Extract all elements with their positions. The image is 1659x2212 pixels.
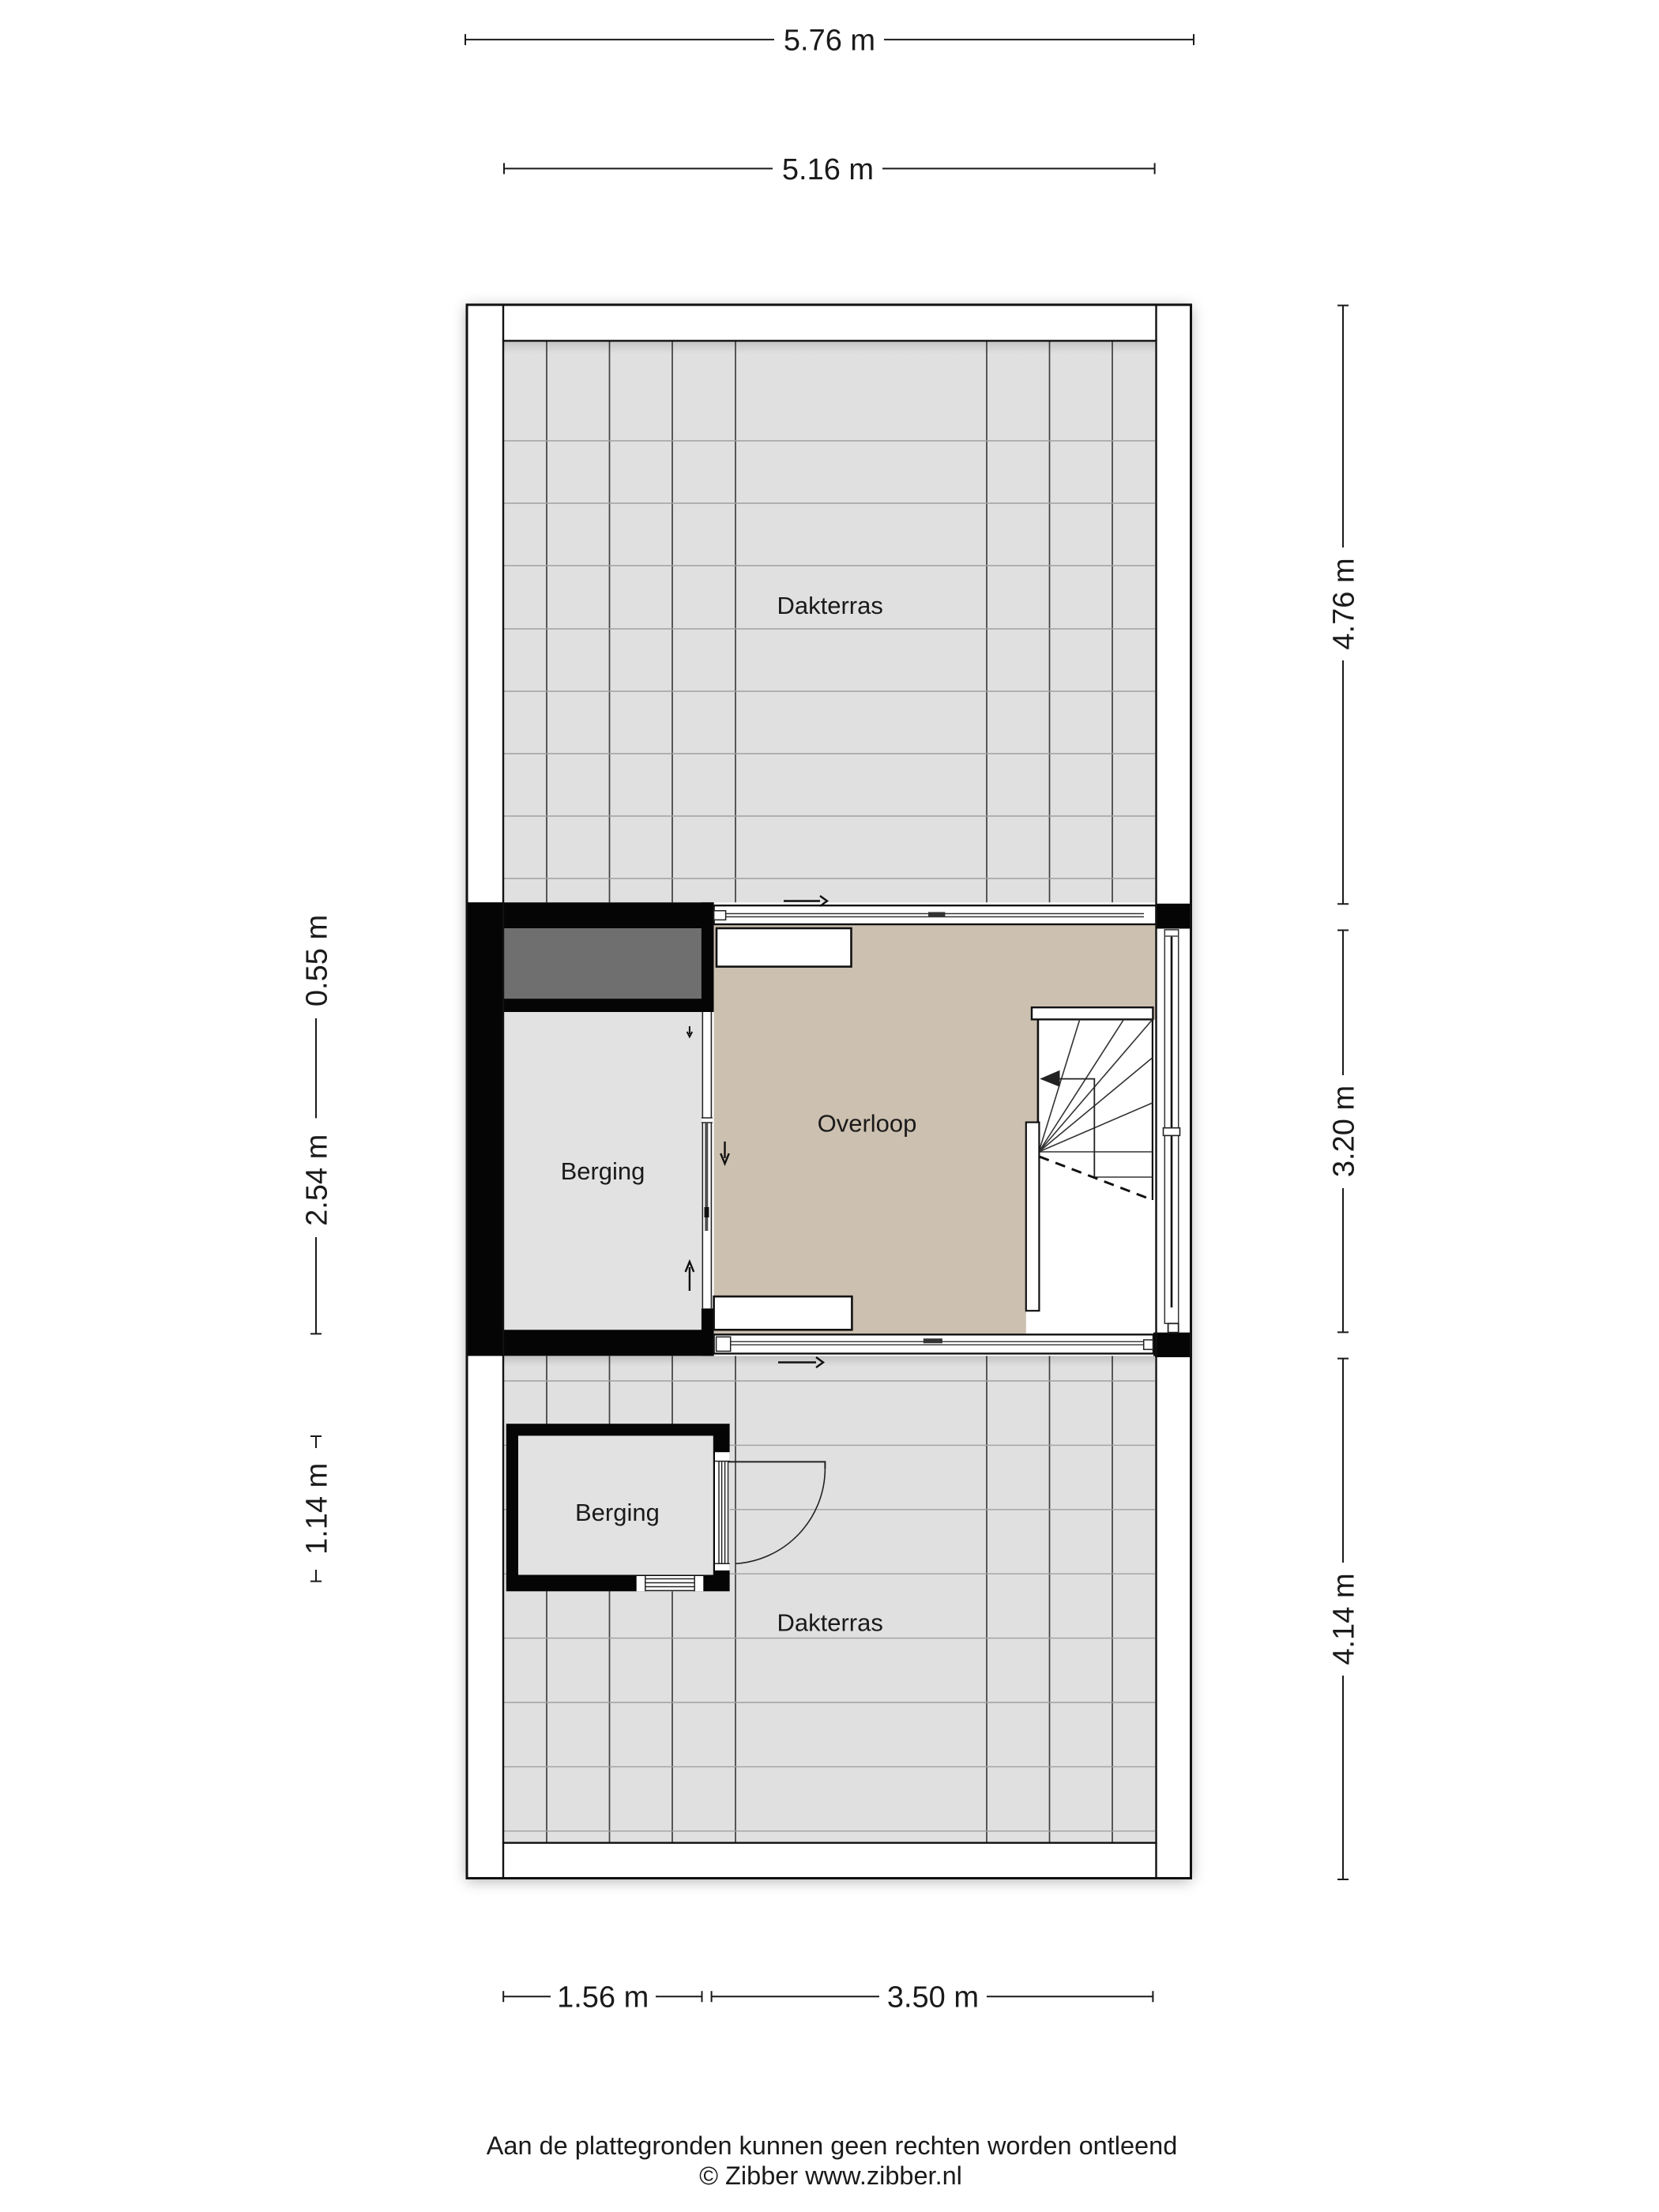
svg-text:5.16 m: 5.16 m xyxy=(782,153,874,186)
svg-text:3.50 m: 3.50 m xyxy=(887,1981,979,2014)
svg-text:0.55 m: 0.55 m xyxy=(301,915,334,1006)
svg-text:© Zibber www.zibber.nl: © Zibber www.zibber.nl xyxy=(699,2161,962,2190)
svg-text:Overloop: Overloop xyxy=(818,1109,917,1137)
svg-text:Aan de plattegronden kunnen ge: Aan de plattegronden kunnen geen rechten… xyxy=(487,2131,1178,2160)
svg-text:3.20 m: 3.20 m xyxy=(1328,1085,1361,1177)
svg-text:Berging: Berging xyxy=(575,1499,660,1526)
svg-text:5.76 m: 5.76 m xyxy=(784,24,875,58)
svg-text:2.54 m: 2.54 m xyxy=(301,1134,334,1226)
svg-text:Dakterras: Dakterras xyxy=(777,1609,883,1637)
svg-text:1.56 m: 1.56 m xyxy=(557,1981,649,2014)
svg-text:Dakterras: Dakterras xyxy=(777,592,883,619)
svg-text:4.14 m: 4.14 m xyxy=(1328,1573,1361,1665)
svg-text:1.14 m: 1.14 m xyxy=(301,1463,334,1555)
svg-text:Berging: Berging xyxy=(561,1157,645,1185)
svg-text:4.76 m: 4.76 m xyxy=(1328,558,1361,649)
